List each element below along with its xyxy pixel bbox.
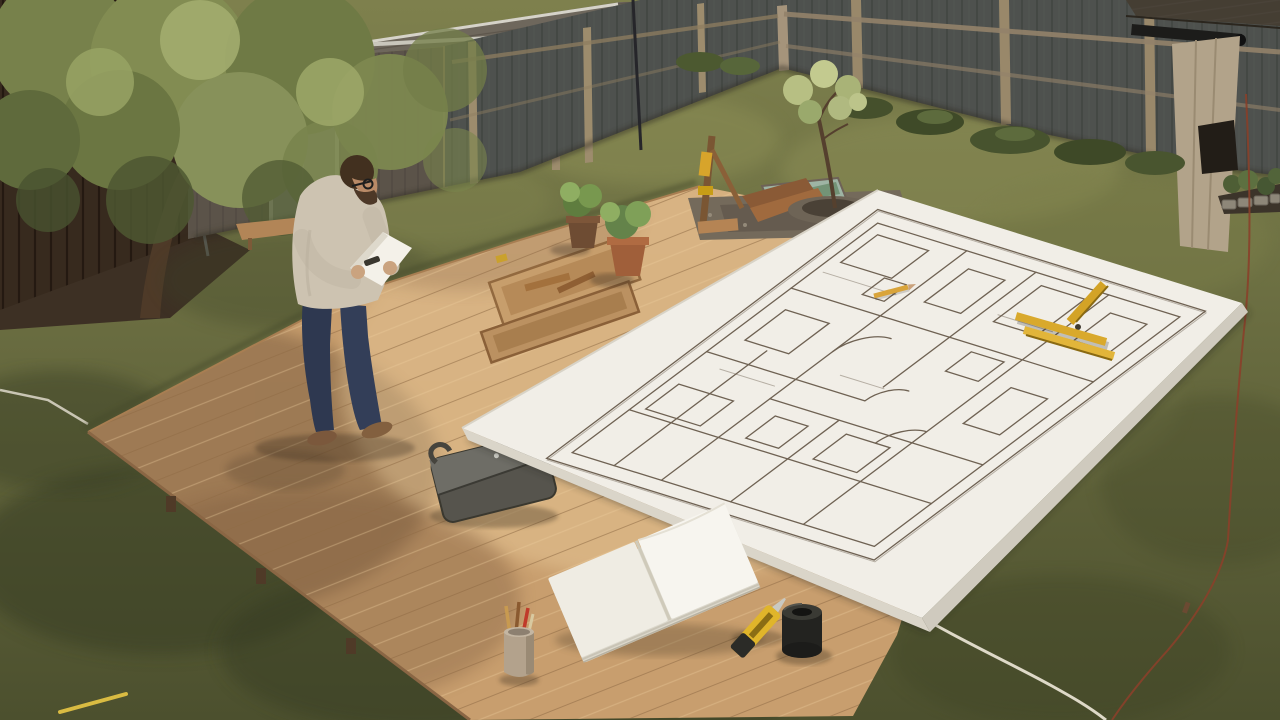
tape-hole bbox=[792, 608, 812, 616]
gravel-stone bbox=[708, 213, 712, 217]
foliage-highlight bbox=[66, 48, 134, 116]
bed-stone bbox=[1254, 196, 1268, 205]
terracotta-pot bbox=[610, 242, 646, 276]
right-hand bbox=[383, 261, 397, 275]
dark-opening bbox=[1198, 120, 1238, 174]
deck-foot bbox=[256, 568, 266, 584]
plan-dot bbox=[1075, 324, 1081, 330]
brown-pot bbox=[568, 220, 598, 248]
sapling-leaves bbox=[849, 93, 867, 111]
sapling-leaves bbox=[798, 100, 822, 124]
bush bbox=[1125, 151, 1185, 175]
herb-plant bbox=[600, 202, 620, 222]
bush bbox=[676, 52, 724, 72]
scene-svg: Olive-green lawn with mottled light and … bbox=[0, 0, 1280, 720]
left-hand bbox=[351, 265, 365, 279]
foliage-shade bbox=[16, 168, 80, 232]
sapling-leaves bbox=[810, 60, 838, 88]
deck-foot bbox=[346, 638, 356, 654]
sapling-leaves bbox=[828, 96, 852, 120]
herb-plant bbox=[625, 201, 651, 227]
bed-stone bbox=[1222, 200, 1236, 209]
foliage-highlight bbox=[296, 58, 364, 126]
foliage-blob bbox=[423, 128, 487, 192]
cup-shade bbox=[526, 632, 534, 675]
bush-highlight bbox=[917, 110, 953, 124]
herb-plant bbox=[560, 182, 580, 202]
foliage-highlight bbox=[160, 0, 240, 80]
foliage-blob bbox=[403, 28, 487, 112]
bush bbox=[720, 57, 760, 75]
fence-post bbox=[1144, 0, 1156, 157]
deck-foot bbox=[166, 496, 176, 512]
cup-opening bbox=[508, 629, 530, 636]
pot-rim bbox=[607, 237, 649, 245]
fence-post bbox=[851, 0, 863, 89]
man-shadow bbox=[225, 450, 345, 490]
bed-stone bbox=[1270, 194, 1280, 203]
foliage-shade bbox=[106, 156, 194, 244]
herb-plant bbox=[578, 184, 602, 208]
bush bbox=[1054, 139, 1126, 165]
pot-rim bbox=[566, 216, 600, 223]
fence-post bbox=[999, 0, 1011, 125]
yellow-clamp bbox=[698, 186, 713, 195]
tape-bottom bbox=[782, 642, 822, 658]
backyard-scene: Olive-green lawn with mottled light and … bbox=[0, 0, 1280, 720]
gravel-stone bbox=[743, 223, 747, 227]
bush-highlight bbox=[995, 127, 1035, 141]
